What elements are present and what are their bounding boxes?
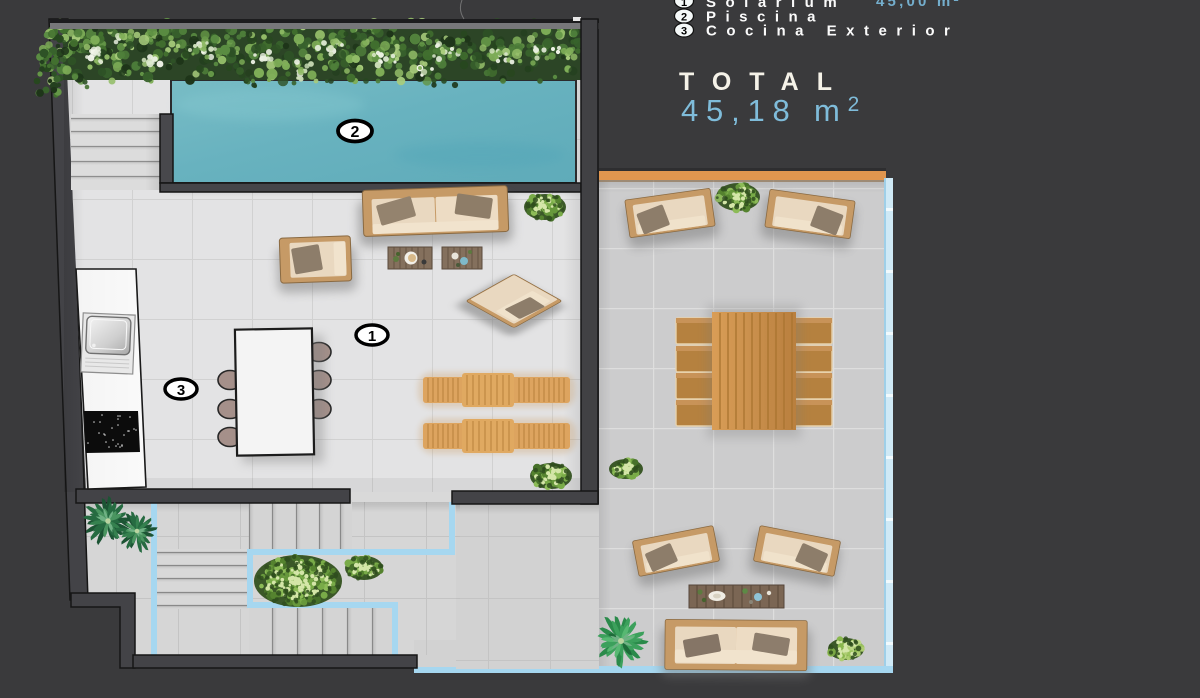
- svg-text:2: 2: [351, 124, 360, 141]
- svg-text:TOTAL: TOTAL: [679, 68, 850, 96]
- svg-text:45,00 m²: 45,00 m²: [876, 0, 962, 10]
- svg-text:Cocina Exterior: Cocina Exterior: [706, 23, 959, 40]
- svg-text:2: 2: [681, 12, 687, 24]
- svg-text:3: 3: [177, 382, 185, 399]
- svg-text:1: 1: [368, 328, 376, 345]
- svg-text:3: 3: [681, 26, 687, 38]
- svg-text:1: 1: [681, 0, 687, 9]
- svg-text:45,18 m2: 45,18 m2: [681, 93, 867, 128]
